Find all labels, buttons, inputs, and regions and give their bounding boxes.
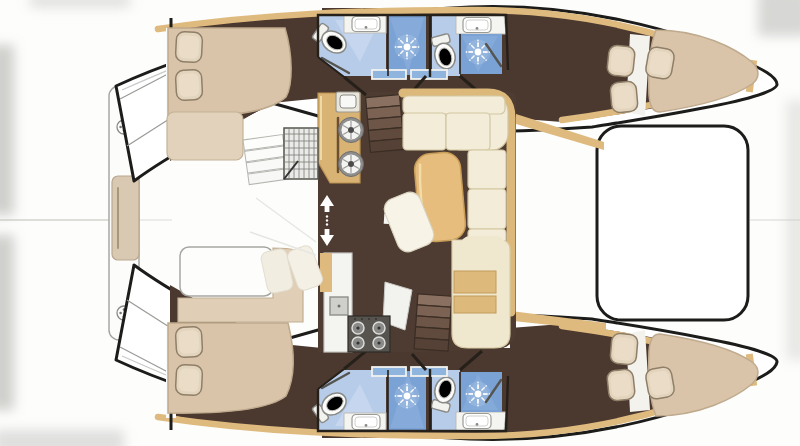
stairs-port xyxy=(366,95,405,153)
bed-ottoman xyxy=(167,112,243,160)
appliance-basin xyxy=(340,95,356,108)
galley-trim xyxy=(320,253,332,292)
chart-desk xyxy=(452,236,510,348)
sofa-backrest xyxy=(403,96,505,114)
aft-bench-cushion xyxy=(112,176,139,260)
sofa-seat xyxy=(468,189,506,229)
sofa-seat xyxy=(403,113,446,150)
stairs-stbd xyxy=(414,294,452,351)
sofa-seat xyxy=(468,150,506,189)
sofa-seat xyxy=(446,113,490,150)
desk-panel xyxy=(454,296,496,313)
stove xyxy=(348,316,390,352)
cockpit-steps xyxy=(243,134,289,184)
catamaran-floor-plan: Catamaran yacht interior layout - top-do… xyxy=(0,0,800,446)
trampoline xyxy=(597,126,748,320)
desk-panel xyxy=(454,271,496,293)
cabin-vanity xyxy=(180,247,273,296)
floor-plan-canvas: Catamaran yacht interior layout - top-do… xyxy=(0,0,800,446)
